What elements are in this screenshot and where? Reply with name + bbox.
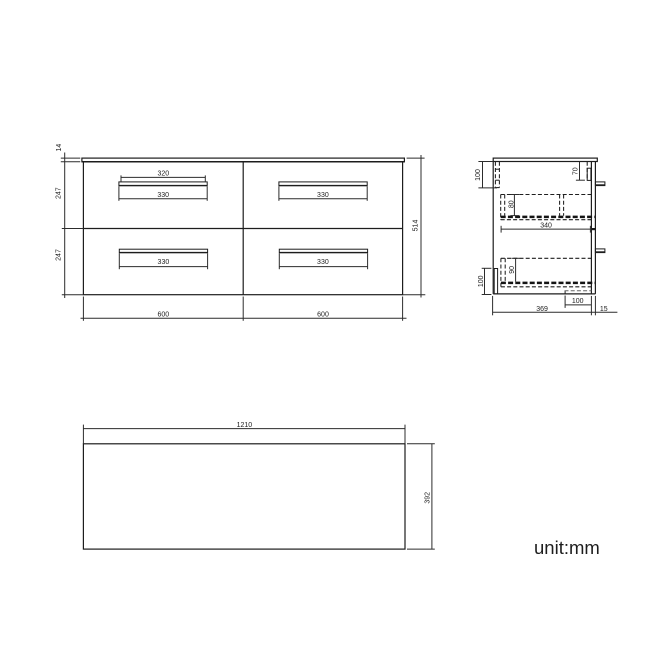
svg-text:100: 100 <box>572 298 584 305</box>
svg-text:unit:mm: unit:mm <box>534 537 600 558</box>
svg-text:330: 330 <box>157 192 169 199</box>
svg-text:90: 90 <box>509 266 516 274</box>
svg-text:247: 247 <box>55 249 62 261</box>
svg-text:330: 330 <box>317 259 329 266</box>
svg-text:320: 320 <box>157 171 169 178</box>
svg-text:392: 392 <box>425 492 432 504</box>
svg-text:330: 330 <box>317 192 329 199</box>
svg-text:80: 80 <box>508 200 515 208</box>
svg-text:600: 600 <box>317 312 329 319</box>
svg-text:340: 340 <box>540 223 552 230</box>
svg-text:514: 514 <box>413 220 420 232</box>
svg-text:100: 100 <box>475 169 482 181</box>
svg-text:14: 14 <box>56 144 63 152</box>
svg-text:330: 330 <box>158 259 170 266</box>
svg-text:100: 100 <box>478 275 485 287</box>
svg-text:600: 600 <box>157 312 169 319</box>
svg-text:369: 369 <box>536 306 548 313</box>
svg-text:15: 15 <box>600 306 608 313</box>
svg-text:70: 70 <box>572 167 579 175</box>
svg-text:1210: 1210 <box>237 422 253 429</box>
svg-text:247: 247 <box>55 187 62 199</box>
